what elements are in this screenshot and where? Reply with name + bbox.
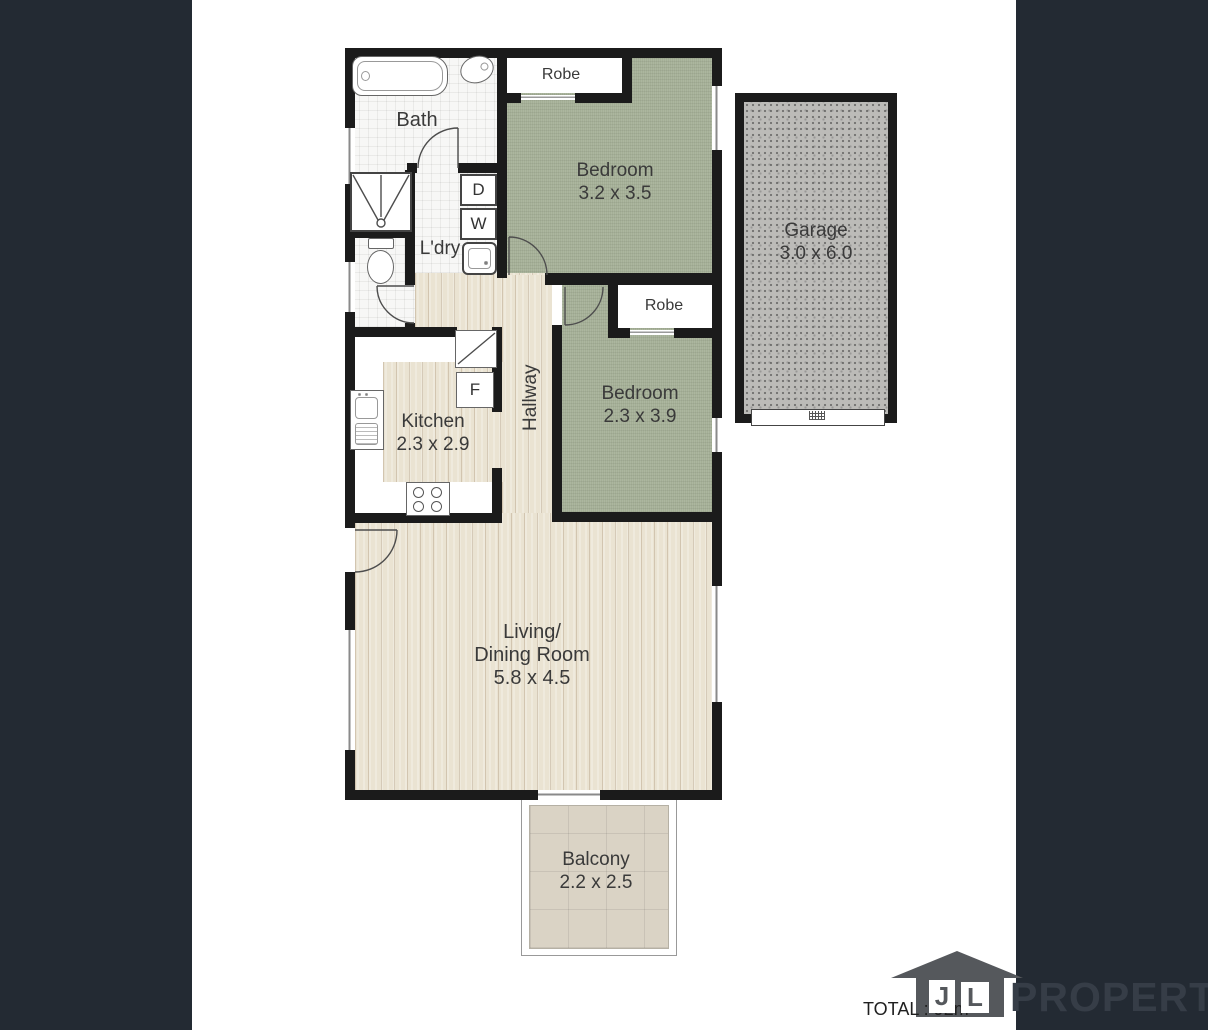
logo-initial-j: J [929,980,955,1013]
bedroom2-door-arc [565,287,603,325]
shower-drain [377,219,385,227]
logo-initial-l: L [961,982,989,1013]
logo-brand-text: PROPERTY [1010,974,1208,1020]
entry-door-arc [355,530,397,572]
total-area-text: TOTAL : 92m² [863,999,975,1020]
pantry-diagonal [458,333,495,364]
bath-door-arc [418,128,458,168]
bedroom1-door-arc [509,237,547,275]
shower-lines [353,175,409,220]
door-arcs-overlay [0,0,1208,1030]
floorplan-page: { "plan": { "rooms": { "bath": {"label":… [0,0,1208,1030]
logo-house-roof-icon [891,951,1023,978]
wc-door-arc [377,286,414,323]
